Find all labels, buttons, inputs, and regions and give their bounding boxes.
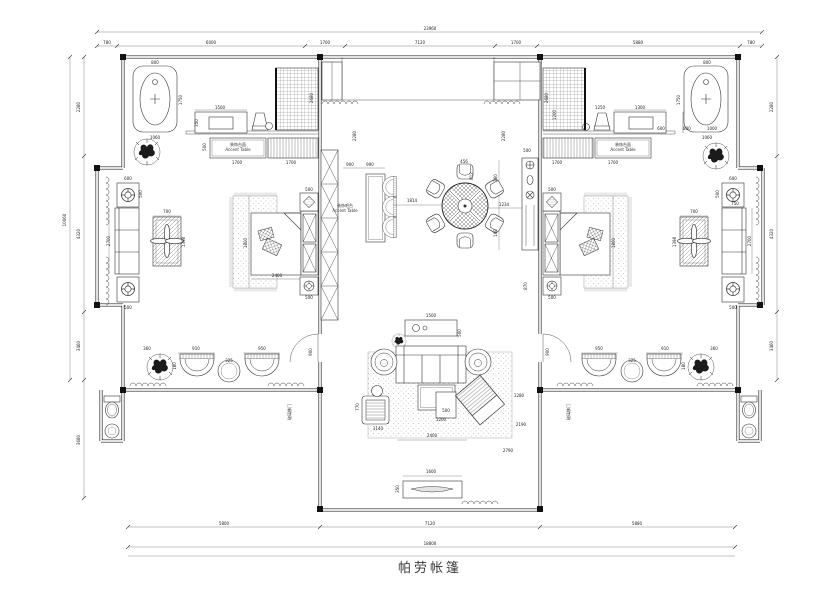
dimension-label: 500 [457, 329, 462, 337]
dimension-label: 1750 [178, 94, 183, 105]
dimension-label: 3680 [76, 434, 81, 445]
right-wc [741, 396, 757, 438]
dimension-label: 500 [729, 305, 737, 310]
dimension-label: 2680 [544, 92, 549, 103]
dimension-label: 780 [103, 40, 111, 45]
bar-counter [366, 174, 385, 242]
door-left-suite [290, 334, 318, 362]
dimension-label: 160 [493, 229, 498, 237]
dimension-label: 1750 [676, 94, 681, 105]
shower-grid [543, 68, 585, 130]
round-table [218, 360, 240, 382]
dimension-label: 700 [690, 209, 698, 214]
plant [688, 354, 714, 380]
dimension-label: 1060 [150, 135, 161, 140]
dimension-label: 1234 [499, 202, 510, 207]
bench [115, 208, 139, 274]
dimension-label: 360 [710, 346, 718, 351]
dimension-label: 600 [124, 176, 132, 181]
dimension-label: 360 [143, 346, 151, 351]
dimension-label: 1200 [552, 109, 557, 120]
dimension-label: 500 [202, 143, 207, 151]
dimension-label: 2190 [516, 422, 527, 427]
dimension-label: 750 [731, 201, 739, 206]
dining-chair [425, 178, 446, 199]
striped-cabinet [543, 138, 593, 158]
dimension-label: 3460 [76, 340, 81, 351]
dining-chair [457, 233, 473, 248]
tub-chair [647, 354, 681, 376]
toilet [741, 396, 757, 418]
dimension-label: 1700 [232, 160, 243, 165]
round-lounge-chair [371, 349, 397, 375]
dimension-label: 2400 [272, 273, 283, 278]
dimension-label: 350 [395, 485, 400, 493]
dimension-label: 456 [460, 159, 468, 164]
vanity-stool [594, 113, 610, 130]
living-room [362, 320, 512, 498]
dimension-label: 500 [138, 190, 143, 198]
dimension-label: 2280 [769, 101, 774, 112]
dimension-label: 780 [747, 40, 755, 45]
dimension-label: 1600 [426, 469, 437, 474]
entry-closets [322, 62, 540, 100]
text-label: 玻璃移门 [565, 404, 571, 420]
dimension-label: 900 [308, 348, 313, 356]
dimension-label: 1250 [595, 105, 606, 110]
dimension-label: 5800 [219, 521, 230, 526]
console-table [522, 158, 538, 250]
curtains [106, 101, 759, 504]
dimension-label: 5880 [633, 40, 644, 45]
dimension-label: 600 [657, 126, 665, 131]
dimension-label: 2280 [76, 101, 81, 112]
dimension-label: 1280 [514, 393, 525, 398]
dimension-label: 870 [523, 282, 528, 290]
dimension-label: 325 [628, 358, 636, 363]
tub-chair [180, 354, 214, 376]
dimension-label: 1814 [407, 198, 418, 203]
dimension-label: 1200 [436, 417, 447, 422]
right-bedroom [543, 193, 632, 296]
dimension-label: 1000 [707, 126, 718, 131]
tub-chair [245, 354, 279, 376]
left-wc [104, 396, 120, 438]
text-label: Accent Table [610, 147, 636, 152]
plant [134, 139, 160, 165]
dimension-label: 1800 [611, 237, 616, 248]
dimension-label: 7120 [425, 521, 436, 526]
dimension-label: 1700 [552, 160, 563, 165]
dimension-label: 2700 [747, 235, 752, 246]
dimension-label: 910 [192, 346, 200, 351]
dimension-label: 500 [523, 148, 531, 153]
dining-chair [425, 213, 446, 234]
dimension-label: 1060 [702, 135, 713, 140]
dimension-label: 2280 [501, 130, 506, 141]
dimension-label: 3460 [769, 340, 774, 351]
right-bath-suite [543, 66, 729, 169]
dimension-label: 1800 [243, 237, 248, 248]
dimension-label: 23960 [424, 26, 437, 31]
dimension-label: 800 [683, 126, 691, 131]
dimension-label: 500 [715, 190, 720, 198]
dimension-label: 812 [469, 172, 474, 180]
side-table [436, 392, 456, 418]
dimension-label: 160 [493, 174, 498, 182]
drawing-title: 帕劳帐篷 [398, 560, 462, 576]
right-nook [582, 354, 714, 382]
tub-chair [582, 354, 616, 376]
dimension-label: 1398 [672, 236, 677, 247]
dimension-label: 500 [442, 408, 450, 413]
toilet [104, 396, 120, 418]
text-label: Accent Table [332, 208, 358, 213]
dimension-label: 1300 [635, 105, 646, 110]
dining-area [321, 150, 538, 320]
dimension-label: 1700 [286, 160, 297, 165]
dimension-label: 900 [346, 162, 354, 167]
dimension-label: 7120 [415, 40, 426, 45]
dimension-label: 1500 [215, 105, 226, 110]
dimension-label: 5880 [632, 521, 643, 526]
dimension-label: 180 [172, 362, 177, 370]
round-table [621, 360, 643, 382]
dimension-label: 500 [548, 295, 556, 300]
dimension-label: 10060 [62, 213, 67, 226]
dimension-label: 600 [729, 176, 737, 181]
dimension-label: 2400 [427, 433, 438, 438]
plant [703, 143, 729, 169]
dimension-label: 180 [681, 362, 686, 370]
dimension-label: 700 [163, 209, 171, 214]
dimension-label: 800 [703, 60, 711, 65]
dimension-label: 1500 [426, 313, 437, 318]
sink [105, 424, 119, 438]
dimension-label: 4320 [76, 228, 81, 239]
plant [147, 354, 173, 380]
dimension-label: 6000 [206, 40, 217, 45]
dimension-label: 325 [225, 358, 233, 363]
floor-plan-sheet: 2396078060001700712017005880780580071205… [0, 0, 837, 592]
dimension-label: 900 [545, 348, 550, 356]
floor-plan-drawing: 2396078060001700712017005880780580071205… [0, 0, 837, 592]
dimension-label: 500 [305, 187, 313, 192]
dimension-label: 1700 [511, 40, 522, 45]
text-label: Accent Table [225, 147, 251, 152]
sink [742, 424, 756, 438]
round-lounge-chair [465, 349, 491, 375]
striped-cabinet [268, 138, 318, 158]
dimension-label: 1140 [373, 426, 384, 431]
bench [722, 208, 746, 274]
dimension-label: 500 [548, 187, 556, 192]
dimension-label: 2700 [106, 235, 111, 246]
dimension-label: 500 [305, 295, 313, 300]
dimension-label: 350 [194, 119, 199, 127]
left-nook [147, 354, 279, 382]
dimension-label: 950 [595, 346, 603, 351]
sofa [396, 346, 466, 383]
dimension-label: 1700 [320, 40, 331, 45]
dimension-label: 770 [355, 403, 360, 411]
dimension-label: 1700 [608, 160, 619, 165]
dimension-label: 990 [366, 162, 374, 167]
dimension-label: 910 [661, 346, 669, 351]
dimension-label: 800 [151, 60, 159, 65]
dimension-label: 2680 [309, 92, 314, 103]
dimension-label: 2790 [503, 448, 514, 453]
left-wing [115, 183, 184, 302]
door-right-suite [543, 334, 571, 362]
dimension-label: 950 [258, 346, 266, 351]
text-label: 玻璃移门 [286, 404, 292, 420]
dimension-label: 2280 [352, 130, 357, 141]
dimension-label: 1398 [181, 236, 186, 247]
dimension-label: 500 [124, 305, 132, 310]
dimension-label: 18800 [424, 541, 437, 546]
dimension-label: 4320 [769, 228, 774, 239]
